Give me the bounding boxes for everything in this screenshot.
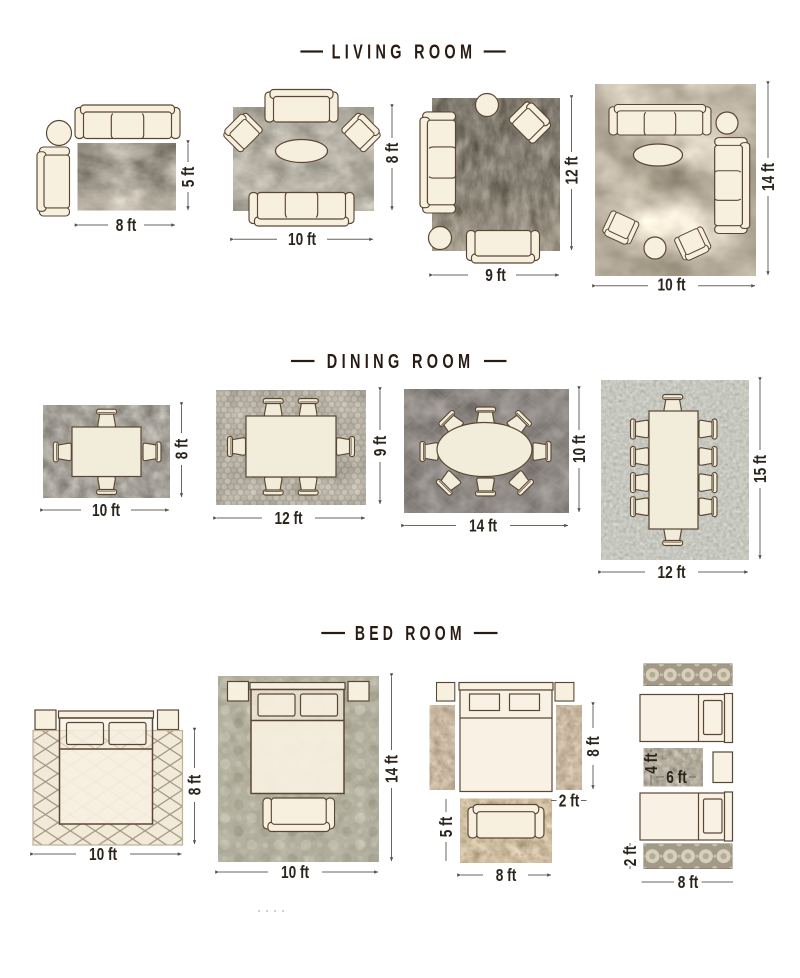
svg-text:8 ft: 8 ft <box>384 142 403 163</box>
svg-text:8 ft: 8 ft <box>116 217 137 236</box>
svg-text:10 ft: 10 ft <box>281 864 310 883</box>
svg-text:10 ft: 10 ft <box>89 846 118 865</box>
svg-text:2 ft: 2 ft <box>559 792 580 811</box>
svg-text:14 ft: 14 ft <box>383 754 402 783</box>
svg-text:LIVING ROOM: LIVING ROOM <box>332 40 477 63</box>
svg-text:DINING ROOM: DINING ROOM <box>327 350 475 373</box>
svg-text:14 ft: 14 ft <box>469 517 498 536</box>
svg-text:12 ft: 12 ft <box>274 510 303 529</box>
svg-text:10 ft: 10 ft <box>288 231 317 250</box>
svg-text:4 ft: 4 ft <box>643 753 662 774</box>
svg-text:BED ROOM: BED ROOM <box>355 621 466 644</box>
svg-text:12 ft: 12 ft <box>563 156 582 185</box>
svg-text:14 ft: 14 ft <box>760 162 779 191</box>
svg-text:6 ft: 6 ft <box>666 769 687 788</box>
svg-text:8 ft: 8 ft <box>186 774 205 795</box>
svg-text:10 ft: 10 ft <box>571 434 590 463</box>
svg-text:9 ft: 9 ft <box>372 435 391 456</box>
svg-text:2 ft: 2 ft <box>622 845 641 866</box>
svg-text:12 ft: 12 ft <box>657 564 686 583</box>
svg-text:8 ft: 8 ft <box>585 736 604 757</box>
svg-text:10 ft: 10 ft <box>657 276 686 295</box>
svg-text:9 ft: 9 ft <box>485 267 506 286</box>
svg-text:5 ft: 5 ft <box>438 816 457 837</box>
svg-text:8 ft: 8 ft <box>678 874 699 893</box>
svg-text:15 ft: 15 ft <box>752 454 771 483</box>
svg-text:5 ft: 5 ft <box>180 166 199 187</box>
svg-text:8 ft: 8 ft <box>496 867 517 886</box>
svg-text:8 ft: 8 ft <box>173 438 192 459</box>
svg-text:10 ft: 10 ft <box>92 502 121 521</box>
